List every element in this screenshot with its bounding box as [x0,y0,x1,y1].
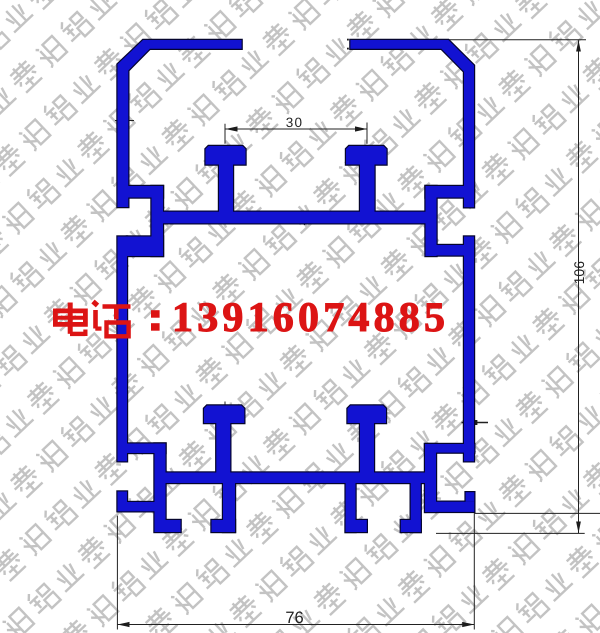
svg-text:76: 76 [285,609,303,627]
svg-text:13916074885: 13916074885 [172,295,449,341]
svg-text:30: 30 [286,115,303,130]
svg-text:106: 106 [571,261,587,285]
